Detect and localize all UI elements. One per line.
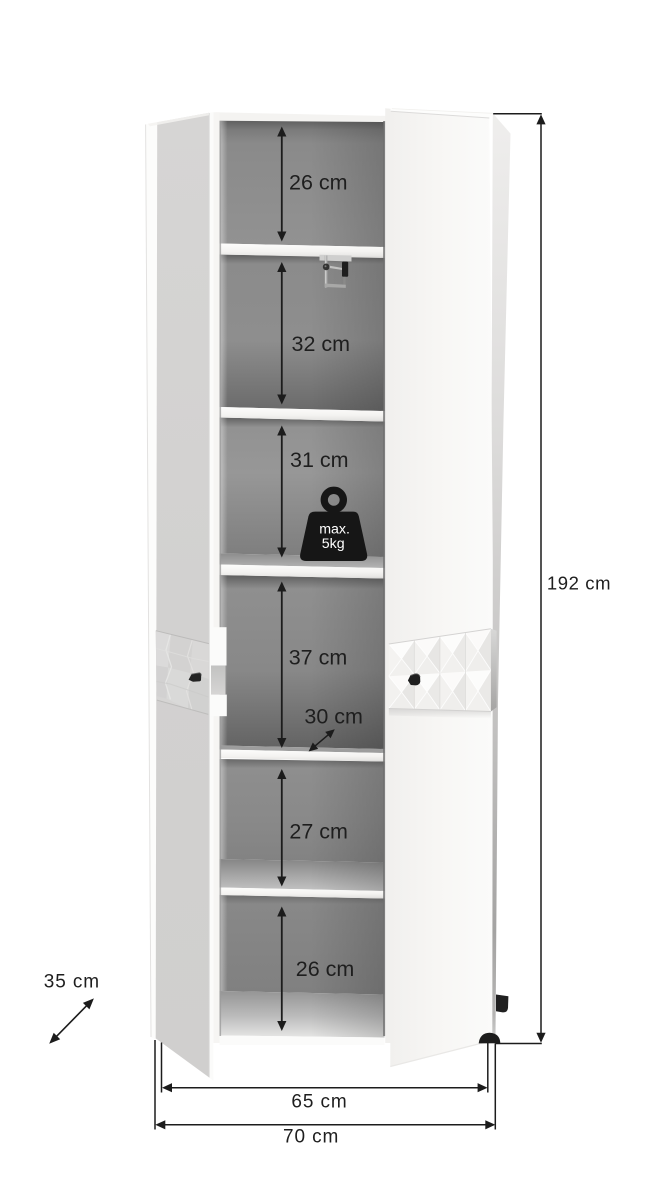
svg-text:5kg: 5kg — [322, 536, 345, 552]
svg-text:30 cm: 30 cm — [304, 705, 363, 729]
svg-text:35 cm: 35 cm — [44, 971, 100, 992]
svg-text:26 cm: 26 cm — [296, 957, 355, 981]
svg-text:max.: max. — [319, 521, 350, 537]
svg-text:65 cm: 65 cm — [291, 1092, 347, 1113]
svg-text:70 cm: 70 cm — [283, 1126, 339, 1147]
svg-text:32 cm: 32 cm — [292, 332, 351, 356]
svg-text:27 cm: 27 cm — [289, 820, 348, 844]
svg-text:26 cm: 26 cm — [289, 171, 348, 195]
svg-text:37 cm: 37 cm — [289, 646, 348, 670]
svg-text:31 cm: 31 cm — [290, 448, 349, 472]
svg-text:192 cm: 192 cm — [547, 573, 611, 594]
